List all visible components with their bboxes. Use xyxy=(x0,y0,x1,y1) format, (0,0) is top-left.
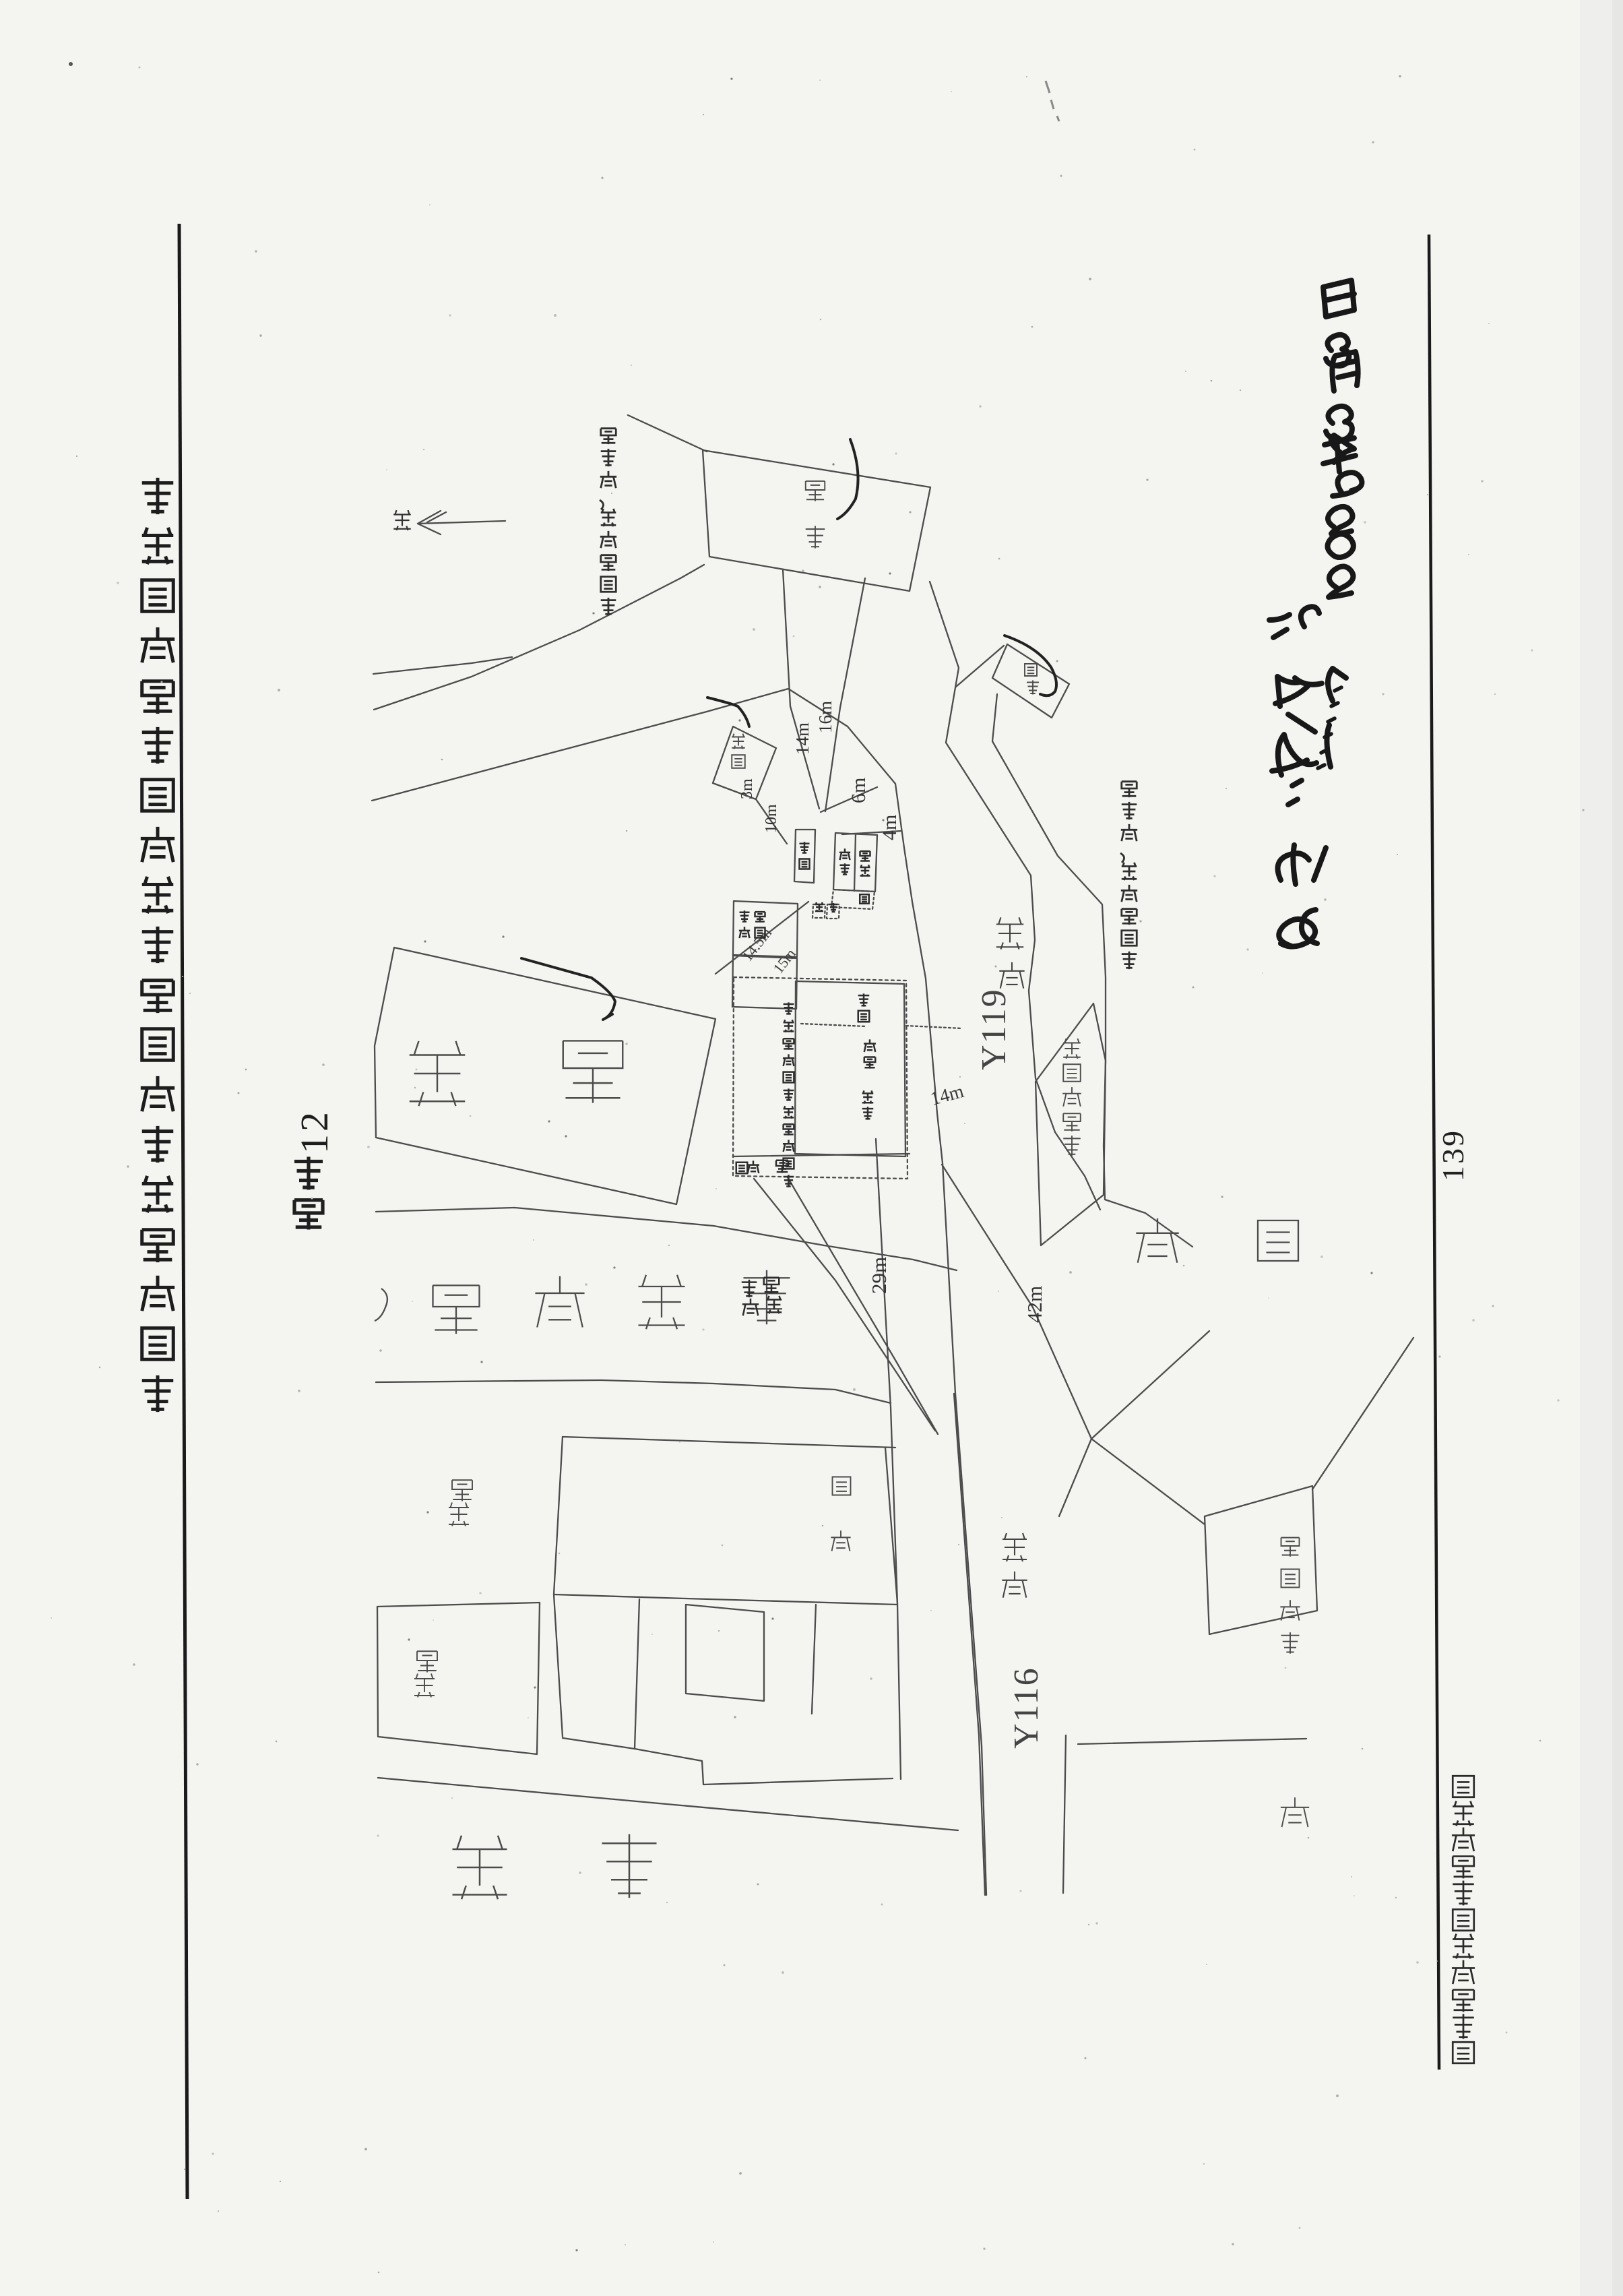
svg-text:4m: 4m xyxy=(879,815,901,840)
svg-text:29m: 29m xyxy=(867,1257,891,1294)
svg-text:14m: 14m xyxy=(792,722,813,755)
svg-text:16m: 16m xyxy=(815,701,835,733)
svg-text:139: 139 xyxy=(1436,1129,1470,1181)
svg-text:6m: 6m xyxy=(848,778,870,803)
svg-text:12: 12 xyxy=(292,1109,336,1154)
svg-text:Y116: Y116 xyxy=(1007,1667,1046,1749)
svg-text:42m: 42m xyxy=(1023,1286,1046,1323)
svg-text:10m: 10m xyxy=(763,804,780,833)
svg-text:3m: 3m xyxy=(738,778,756,799)
svg-text:Y119: Y119 xyxy=(975,988,1013,1070)
